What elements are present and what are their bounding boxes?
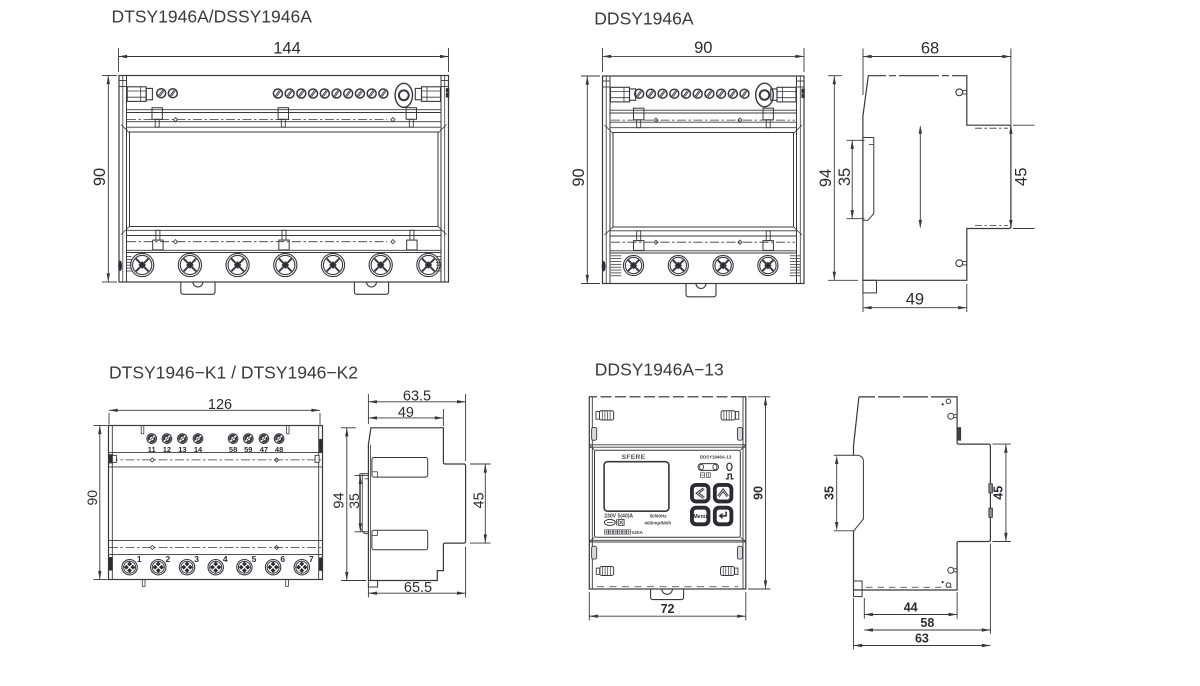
svg-text:DDSY1946A: DDSY1946A: [594, 9, 694, 29]
svg-text:90: 90: [751, 486, 765, 500]
svg-text:DTSY1946A/DSSY1946A: DTSY1946A/DSSY1946A: [112, 6, 313, 26]
svg-text:49: 49: [906, 291, 924, 309]
svg-text:63: 63: [915, 631, 929, 645]
svg-text:35: 35: [836, 168, 854, 186]
svg-text:DDSY1946A-13: DDSY1946A-13: [700, 455, 732, 460]
svg-text:Menu: Menu: [693, 514, 707, 520]
svg-text:DTSY1946−K1 / DTSY1946−K2: DTSY1946−K1 / DTSY1946−K2: [109, 362, 358, 382]
svg-text:90: 90: [694, 39, 712, 57]
svg-text:4: 4: [223, 554, 228, 564]
svg-text:1: 1: [137, 554, 142, 564]
svg-text:400imp/kWh: 400imp/kWh: [644, 521, 671, 526]
svg-text:35: 35: [822, 486, 836, 500]
svg-text:90: 90: [570, 168, 588, 186]
svg-text:≤20A: ≤20A: [632, 530, 644, 536]
svg-text:DDSY1946A−13: DDSY1946A−13: [595, 360, 724, 380]
svg-text:230V 5(40)A: 230V 5(40)A: [604, 514, 633, 520]
svg-text:45: 45: [992, 486, 1006, 500]
svg-text:90: 90: [84, 490, 100, 506]
svg-text:2: 2: [166, 554, 171, 564]
svg-text:72: 72: [661, 602, 675, 616]
svg-text:SFERE: SFERE: [622, 454, 646, 461]
svg-text:45: 45: [1013, 168, 1031, 186]
svg-text:65.5: 65.5: [404, 580, 432, 596]
svg-text:7: 7: [309, 554, 314, 564]
svg-text:49: 49: [398, 405, 414, 421]
svg-text:58: 58: [920, 616, 934, 630]
svg-text:45: 45: [471, 492, 487, 508]
svg-text:144: 144: [273, 39, 301, 57]
svg-text:126: 126: [208, 397, 232, 413]
svg-text:50/60Hz: 50/60Hz: [650, 514, 668, 519]
svg-text:68: 68: [921, 39, 939, 57]
svg-text:5: 5: [252, 554, 257, 564]
svg-text:6: 6: [280, 554, 285, 564]
svg-text:94: 94: [817, 169, 835, 187]
svg-text:44: 44: [904, 600, 918, 614]
svg-text:90: 90: [91, 168, 109, 186]
svg-text:3: 3: [194, 554, 199, 564]
svg-text:35: 35: [346, 493, 362, 509]
svg-text:94: 94: [331, 492, 347, 508]
svg-text:63.5: 63.5: [403, 389, 431, 405]
